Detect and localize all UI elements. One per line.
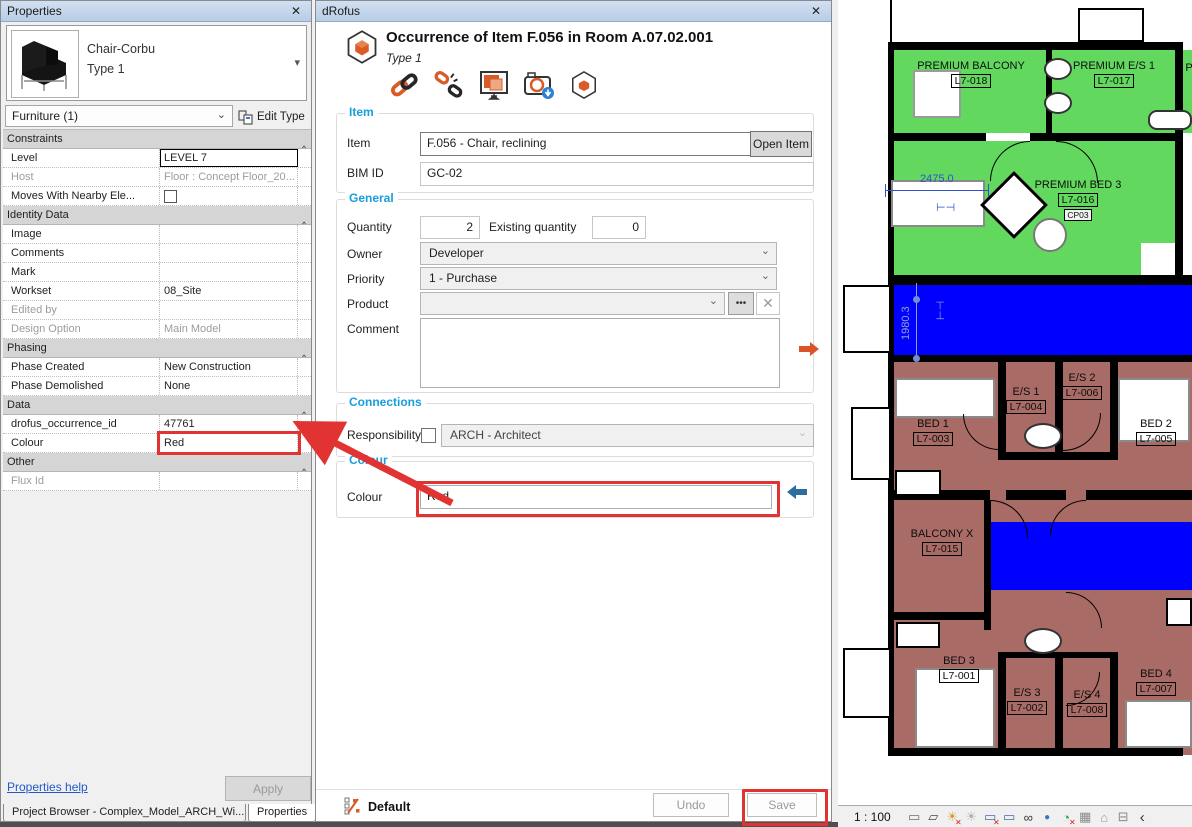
sync-view-icon[interactable] bbox=[478, 69, 510, 101]
properties-panel: Properties ✕ Chair-Corbu Type 1 ▾ Furnit… bbox=[0, 0, 312, 822]
drofus-panel: dRofus ✕ Occurrence of Item F.056 in Roo… bbox=[315, 0, 832, 822]
colour-group: Colour Colour Red bbox=[336, 461, 814, 518]
close-icon[interactable]: ✕ bbox=[807, 4, 825, 18]
save-button[interactable]: Save bbox=[747, 793, 817, 817]
bathtub bbox=[1148, 110, 1192, 130]
element-filter-label: Furniture (1) bbox=[12, 109, 78, 123]
priority-label: Priority bbox=[347, 272, 384, 286]
quantity-input[interactable]: 2 bbox=[420, 216, 480, 239]
drofus-toolbar bbox=[388, 69, 600, 101]
push-to-revit-arrow-icon[interactable] bbox=[798, 341, 820, 360]
wall bbox=[891, 355, 1192, 362]
connections-group-legend: Connections bbox=[345, 395, 426, 409]
dimension-symbol: ⊢⊣ bbox=[936, 201, 955, 214]
colour-input[interactable]: Red bbox=[420, 485, 772, 509]
type-selector[interactable]: Chair-Corbu Type 1 ▾ bbox=[6, 25, 307, 101]
owner-label: Owner bbox=[347, 247, 382, 261]
occurrence-subtitle: Type 1 bbox=[386, 51, 422, 65]
displacement-icon[interactable]: ⌂ bbox=[1095, 810, 1114, 825]
revit-window: Properties ✕ Chair-Corbu Type 1 ▾ Furnit… bbox=[0, 0, 1192, 827]
properties-titlebar[interactable]: Properties ✕ bbox=[1, 1, 311, 22]
wardrobe bbox=[895, 470, 941, 496]
item-label: Item bbox=[347, 136, 370, 150]
phase-demolished-value[interactable]: None bbox=[160, 377, 298, 395]
analytical-model-icon[interactable]: ▦ bbox=[1076, 809, 1095, 825]
room-label-premium-balcony: PREMIUM BALCONYL7-018 bbox=[896, 60, 1046, 88]
edit-type-icon bbox=[238, 110, 253, 125]
group-header: Phasing bbox=[3, 339, 311, 358]
edit-type-button[interactable]: Edit Type bbox=[237, 103, 311, 131]
crop-region-icon[interactable]: ▭ bbox=[905, 809, 924, 825]
wall bbox=[888, 42, 1178, 50]
reveal-hidden-icon[interactable]: ● bbox=[1038, 812, 1057, 823]
room-label-es4: E/S 4L7-008 bbox=[1060, 689, 1114, 717]
dimension-symbol: ⊢⊣ bbox=[934, 301, 947, 320]
family-thumbnail bbox=[11, 30, 79, 98]
group-header: Data bbox=[3, 396, 311, 415]
edited-by-value bbox=[160, 301, 298, 319]
visual-style-icon[interactable]: ▱ bbox=[924, 809, 943, 825]
host-value: Floor : Concept Floor_20... bbox=[160, 168, 298, 186]
room-label-es1: E/S 1L7-004 bbox=[1000, 386, 1052, 414]
shadows-icon[interactable]: ☀ bbox=[962, 809, 981, 825]
shaft-box bbox=[1078, 8, 1144, 42]
toilet bbox=[1024, 628, 1062, 654]
undo-button[interactable]: Undo bbox=[653, 793, 729, 817]
item-input[interactable]: F.056 - Chair, reclining bbox=[420, 132, 752, 156]
general-group-legend: General bbox=[345, 191, 398, 205]
exterior-box bbox=[843, 648, 891, 718]
floor-plan-view[interactable]: PREMIUM BALCONYL7-018 PREMIUM E/S 1L7-01… bbox=[838, 0, 1192, 827]
comments-value[interactable] bbox=[160, 244, 298, 262]
unlink-icon[interactable] bbox=[433, 69, 465, 101]
model-element-icon[interactable] bbox=[568, 69, 600, 101]
workset-value[interactable]: 08_Site bbox=[160, 282, 298, 300]
bed4-symbol bbox=[1125, 700, 1192, 748]
responsibility-checkbox[interactable] bbox=[421, 428, 436, 443]
capture-image-icon[interactable] bbox=[523, 69, 555, 101]
responsibility-label: Responsibility bbox=[347, 428, 421, 442]
drofus-item-icon bbox=[344, 29, 380, 68]
property-row: ColourRed bbox=[3, 434, 311, 453]
property-row: Moves With Nearby Ele... bbox=[3, 187, 311, 206]
show-crop-icon[interactable]: ▭ bbox=[1000, 809, 1019, 825]
bed1-symbol bbox=[895, 378, 995, 418]
wall bbox=[888, 748, 1183, 756]
tab-properties[interactable]: Properties bbox=[248, 804, 316, 822]
room-label-premium-bed3: PREMIUM BED 3L7-016CP03 bbox=[1013, 179, 1143, 222]
flux-id-value bbox=[160, 472, 298, 490]
property-row: Workset08_Site bbox=[3, 282, 311, 301]
view-control-bar: 1 : 100 ▭ ▱ ☀✕ ☀ ▭✕ ▭ ∞ ● ◔✕ ▦ ⌂ ⊟ ‹ bbox=[838, 805, 1192, 827]
product-select[interactable] bbox=[420, 292, 725, 315]
footer-divider bbox=[316, 789, 831, 790]
family-name: Chair-Corbu bbox=[87, 42, 155, 56]
dimension-horizontal[interactable]: 2475.0 bbox=[920, 173, 954, 185]
dimension-line-vertical bbox=[916, 283, 917, 361]
group-header: Identity Data bbox=[3, 206, 311, 225]
edit-type-label: Edit Type bbox=[257, 111, 305, 123]
property-row: Comments bbox=[3, 244, 311, 263]
wardrobe bbox=[896, 622, 940, 648]
element-filter-combo[interactable]: Furniture (1) bbox=[5, 105, 233, 127]
crop-view-icon[interactable]: ▭✕ bbox=[981, 809, 1000, 825]
room-label-es3: E/S 3L7-002 bbox=[1001, 687, 1053, 715]
chair-icon bbox=[12, 31, 76, 95]
existing-quantity-label: Existing quantity bbox=[489, 220, 576, 234]
room-label-partial: PR bbox=[1183, 62, 1192, 75]
chevron-down-icon[interactable]: ▾ bbox=[294, 56, 300, 69]
room-label-premium-es1: PREMIUM E/S 1L7-017 bbox=[1050, 60, 1178, 88]
property-row: drofus_occurrence_id47761 bbox=[3, 415, 311, 434]
drofus-titlebar[interactable]: dRofus ✕ bbox=[316, 1, 831, 22]
closet bbox=[1166, 598, 1192, 626]
drofus-title: dRofus bbox=[322, 4, 360, 18]
item-group-legend: Item bbox=[345, 105, 378, 119]
wall bbox=[894, 612, 990, 620]
properties-help-link[interactable]: Properties help bbox=[7, 780, 88, 794]
dimension-grip[interactable] bbox=[913, 296, 920, 303]
property-row: Mark bbox=[3, 263, 311, 282]
property-row: LevelLEVEL 7 bbox=[3, 149, 311, 168]
existing-quantity-input[interactable]: 0 bbox=[592, 216, 646, 239]
item-group: Item Item F.056 - Chair, reclining Open … bbox=[336, 113, 814, 193]
room-label-es2: E/S 2L7-006 bbox=[1052, 372, 1112, 400]
property-row: Phase DemolishedNone bbox=[3, 377, 311, 396]
apply-button[interactable]: Apply bbox=[225, 776, 311, 801]
scale-control[interactable]: 1 : 100 bbox=[854, 810, 891, 824]
property-row: Edited by bbox=[3, 301, 311, 320]
comment-textarea[interactable] bbox=[420, 318, 780, 388]
corridor-fill-upper bbox=[891, 285, 1192, 355]
exterior-box bbox=[851, 407, 891, 480]
product-more-button[interactable]: ••• bbox=[728, 292, 754, 315]
properties-title: Properties bbox=[7, 4, 62, 18]
property-row: HostFloor : Concept Floor_20... bbox=[3, 168, 311, 187]
room-label-bed2: BED 2L7-005 bbox=[1121, 418, 1191, 446]
dimension-tick bbox=[885, 184, 886, 197]
general-group: General Quantity 2 Existing quantity 0 O… bbox=[336, 199, 814, 393]
room-fill-premium-es-right bbox=[1141, 141, 1175, 243]
room-label-balcony-x: BALCONY XL7-015 bbox=[896, 528, 988, 556]
group-header: Other bbox=[3, 453, 311, 472]
wall bbox=[888, 275, 1192, 285]
wall bbox=[1006, 490, 1066, 500]
view-properties-icon[interactable]: ◔✕ bbox=[1057, 810, 1076, 825]
colour-group-legend: Colour bbox=[345, 453, 392, 467]
tab-project-browser[interactable]: Project Browser - Complex_Model_ARCH_Wi.… bbox=[3, 804, 246, 822]
dimension-tick bbox=[988, 184, 989, 197]
collapse-icon[interactable]: ‹ bbox=[1133, 809, 1152, 826]
sun-path-icon[interactable]: ☀✕ bbox=[943, 809, 962, 825]
room-label-bed3: BED 3L7-001 bbox=[923, 655, 995, 683]
property-row: Phase CreatedNew Construction bbox=[3, 358, 311, 377]
pull-from-revit-arrow-icon[interactable] bbox=[786, 484, 808, 503]
wall bbox=[894, 133, 986, 141]
moves-with-nearby-value[interactable] bbox=[160, 187, 298, 205]
window-bottom-edge bbox=[0, 822, 838, 827]
wall bbox=[1086, 490, 1192, 500]
design-option-value: Main Model bbox=[160, 320, 298, 338]
property-row: Design OptionMain Model bbox=[3, 320, 311, 339]
dimension-grip[interactable] bbox=[913, 355, 920, 362]
wall bbox=[890, 0, 892, 44]
exterior-box bbox=[843, 285, 891, 353]
drofus-occurrence-id-value[interactable]: 47761 bbox=[160, 415, 298, 433]
panel-tabs: Project Browser - Complex_Model_ARCH_Wi.… bbox=[1, 804, 316, 824]
comment-label: Comment bbox=[347, 322, 399, 336]
bim-id-label: BIM ID bbox=[347, 166, 384, 180]
dimension-vertical[interactable]: 1980.3 bbox=[900, 306, 912, 340]
room-label-bed4: BED 4L7-007 bbox=[1120, 668, 1192, 696]
properties-grid: Constraints LevelLEVEL 7 HostFloor : Con… bbox=[3, 129, 311, 491]
group-header: Constraints bbox=[3, 130, 311, 149]
close-icon[interactable]: ✕ bbox=[287, 4, 305, 18]
room-label-bed1: BED 1L7-003 bbox=[898, 418, 968, 446]
link-icon[interactable] bbox=[388, 69, 420, 101]
image-value[interactable] bbox=[160, 225, 298, 243]
chair-plan-symbol bbox=[1033, 218, 1067, 252]
mark-value[interactable] bbox=[160, 263, 298, 281]
owner-select[interactable]: Developer bbox=[420, 242, 777, 265]
connections-group: Connections Responsibility ARCH - Archit… bbox=[336, 403, 814, 457]
level-value[interactable]: LEVEL 7 bbox=[160, 149, 298, 167]
product-label: Product bbox=[347, 297, 388, 311]
responsibility-select[interactable]: ARCH - Architect bbox=[441, 424, 814, 447]
type-name: Type 1 bbox=[87, 62, 125, 76]
phase-created-value[interactable]: New Construction bbox=[160, 358, 298, 376]
hide-isolate-icon[interactable]: ∞ bbox=[1019, 810, 1038, 825]
open-item-button[interactable]: Open Item bbox=[750, 131, 812, 157]
default-settings-icon[interactable] bbox=[344, 797, 362, 818]
product-clear-button[interactable]: ✕ bbox=[756, 292, 780, 315]
toilet bbox=[1024, 423, 1062, 449]
property-row: Flux Id bbox=[3, 472, 311, 491]
dimension-line bbox=[885, 190, 989, 191]
property-row: Image bbox=[3, 225, 311, 244]
quantity-label: Quantity bbox=[347, 220, 392, 234]
bim-id-input[interactable]: GC-02 bbox=[420, 162, 814, 186]
colour-label: Colour bbox=[347, 490, 382, 504]
toilet bbox=[1044, 92, 1072, 114]
default-label: Default bbox=[368, 800, 410, 814]
checkbox[interactable] bbox=[164, 190, 177, 203]
wall bbox=[998, 452, 1118, 460]
wall bbox=[1030, 133, 1175, 141]
colour-value[interactable]: Red bbox=[160, 434, 298, 452]
occurrence-title: Occurrence of Item F.056 in Room A.07.02… bbox=[386, 29, 713, 46]
lock-icon[interactable]: ⊟ bbox=[1114, 809, 1133, 825]
priority-select[interactable]: 1 - Purchase bbox=[420, 267, 777, 290]
